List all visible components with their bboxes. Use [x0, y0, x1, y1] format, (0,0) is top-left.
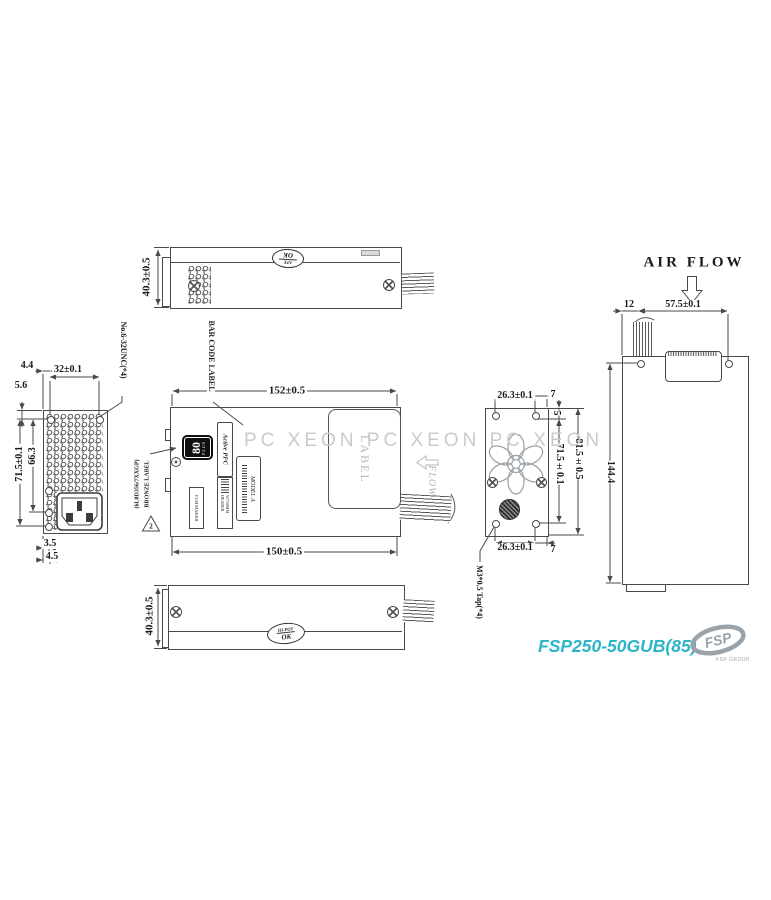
80plus-badge: 80 PLUS	[182, 435, 213, 460]
rear-hole-left	[637, 360, 645, 368]
rear-inlet-gasket	[668, 352, 717, 356]
dim-bottom-view-height: 40.3±0.5	[145, 594, 156, 637]
model-label: MODEL A	[236, 456, 261, 521]
left-view-hole-m1	[45, 487, 53, 495]
fan-view-hole-tr	[532, 412, 540, 420]
left-view-hole-m2	[45, 509, 53, 517]
ac-inlet-socket	[56, 492, 104, 532]
fan-screw-left	[487, 477, 498, 488]
dim-rear-57-5: 57.5±0.1	[663, 300, 703, 310]
dim-left-5-6: 5.6	[13, 381, 30, 391]
top-view-screw-right	[383, 279, 395, 291]
bar-code-label-note: BAR CODE LABEL	[207, 319, 215, 392]
main-view-grommet	[171, 457, 181, 467]
dim-fan-top-offset: 7	[549, 390, 558, 400]
dim-rear-144-4: 144.4	[603, 461, 617, 484]
dim-fan-top: 26.3±0.1	[495, 391, 535, 401]
fsp-group-caption: FSP GROUP	[716, 657, 750, 663]
dim-left-66-3: 66.3	[28, 445, 38, 467]
dim-left-4-5: 4.5	[44, 552, 61, 562]
left-view-hole-tl	[47, 416, 55, 424]
flow-annotation: FLOW	[426, 465, 436, 496]
dim-main-width-top: 152±0.5	[267, 386, 307, 397]
fan-screw-right	[536, 477, 547, 488]
top-view-slot	[361, 250, 380, 256]
header-label-barcode	[221, 478, 229, 493]
header-label: W/750MM HEADER	[217, 477, 233, 529]
ate-stamp-line1: ATE	[283, 260, 292, 265]
dim-rear-12: 12	[622, 300, 636, 310]
bronze-label-line1: (6L0D356/7XXGP)	[133, 460, 143, 509]
bronze-note-number: 2	[149, 524, 153, 531]
label-area-text: LABEL	[357, 435, 372, 484]
bottom-view-screw-right	[387, 606, 399, 618]
left-view-hole-b	[45, 523, 53, 531]
ate-stamp-line2: OK	[279, 251, 297, 261]
header-label-text: W/750MM HEADER	[220, 495, 230, 528]
bronze-label-note: (6L0D356/7XXGP) BRONZE LABEL	[133, 460, 152, 509]
air-flow-label: AIR FLOW	[643, 256, 744, 271]
dim-main-width-bottom: 150±0.5	[264, 547, 304, 558]
active-pfc-text: Active PFC	[222, 434, 229, 465]
rear-hole-right	[725, 360, 733, 368]
main-label-area: LABEL	[328, 409, 401, 509]
technical-drawing-canvas: ATE OK 40.3±0.5 4.4 32±0.1 5.6 66.3 71.5…	[0, 0, 771, 900]
fan-view-thermistor	[499, 499, 520, 520]
badge-sub: PLUS	[202, 441, 206, 455]
maker-label: FUJI MAKER	[189, 487, 204, 529]
80plus-badge-text: 80 PLUS	[190, 441, 206, 455]
dim-fan-bottom-offset: 7	[549, 545, 558, 555]
screw-spec-note: No.6-32UNC(*4)	[119, 320, 127, 379]
product-model-text: FSP250-50GUB(85)	[538, 636, 697, 657]
fan-view-hole-br	[532, 520, 540, 528]
dim-top-view-height: 40.3±0.5	[142, 255, 153, 298]
dim-left-3-5: 3.5	[42, 539, 59, 549]
fan-view-hole-tl	[492, 412, 500, 420]
dim-left-71-5: 71.5±0.1	[15, 444, 25, 484]
tap-spec-note: M3*0.5 Tap(*4)	[475, 564, 483, 620]
rear-wire-bundle	[633, 322, 653, 356]
model-label-text: MODEL A	[249, 476, 255, 502]
model-label-barcode	[242, 465, 247, 513]
dim-fan-bottom: 26.3±0.1	[495, 543, 535, 553]
active-pfc-label: Active PFC	[217, 422, 233, 477]
maker-label-text: FUJI MAKER	[194, 495, 199, 521]
fan-view-hole-bl	[492, 520, 500, 528]
top-view-screw-left	[188, 280, 200, 292]
bottom-view-wire-bundle	[402, 599, 434, 624]
dim-left-4-4: 4.4	[19, 361, 36, 371]
left-view-hole-tr	[96, 416, 104, 424]
dim-fan-71-5: 71.5±0.1	[552, 444, 566, 485]
dim-fan-edge: 5	[549, 411, 563, 416]
main-view-wire-bundle	[399, 494, 451, 523]
dim-left-32: 32±0.1	[52, 365, 84, 375]
hipot-stamp-line2: OK	[277, 631, 296, 642]
bronze-label-line2: BRONZE LABEL	[143, 460, 153, 509]
top-view-wire-bundle	[402, 272, 435, 294]
badge-number: 80	[190, 441, 202, 455]
dim-fan-81-5: 81.5±0.5	[571, 439, 585, 480]
bottom-view-screw-left	[170, 606, 182, 618]
